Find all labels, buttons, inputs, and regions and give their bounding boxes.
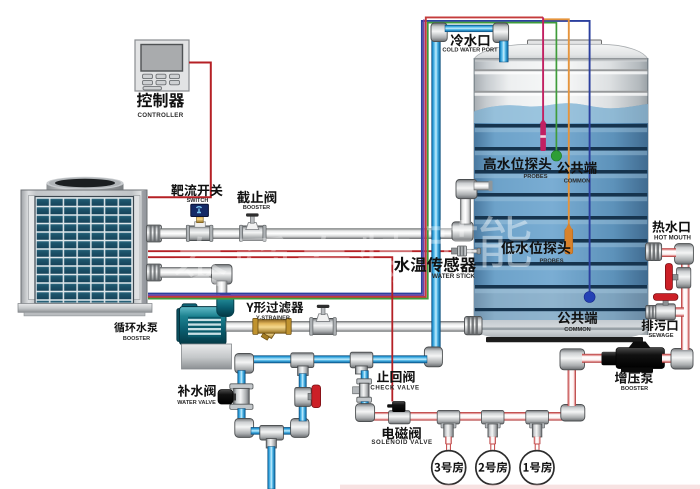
svg-text:COMMON: COMMON — [564, 327, 591, 333]
svg-text:BOOSTER: BOOSTER — [123, 336, 150, 342]
svg-text:CHECK VALVE: CHECK VALVE — [370, 385, 419, 392]
svg-text:PROBES: PROBES — [539, 259, 563, 265]
svg-text:SOLENOID VALVE: SOLENOID VALVE — [371, 439, 432, 446]
svg-text:COLD WATER PORT: COLD WATER PORT — [442, 47, 498, 53]
svg-text:WATER STICK: WATER STICK — [432, 273, 475, 280]
svg-text:SWITCH: SWITCH — [187, 198, 209, 204]
svg-text:HOT MOUTH: HOT MOUTH — [654, 235, 691, 242]
svg-text:BOOSTER: BOOSTER — [621, 386, 648, 392]
svg-text:WATER VALVE: WATER VALVE — [177, 400, 216, 406]
svg-text:Y-STRAINER: Y-STRAINER — [256, 315, 290, 321]
svg-text:COMMON: COMMON — [564, 179, 591, 185]
svg-text:SEWAGE: SEWAGE — [649, 333, 674, 339]
svg-text:PROBES: PROBES — [523, 174, 547, 180]
svg-text:CONTROLLER: CONTROLLER — [138, 112, 184, 119]
svg-text:BOOSTER: BOOSTER — [243, 205, 270, 211]
